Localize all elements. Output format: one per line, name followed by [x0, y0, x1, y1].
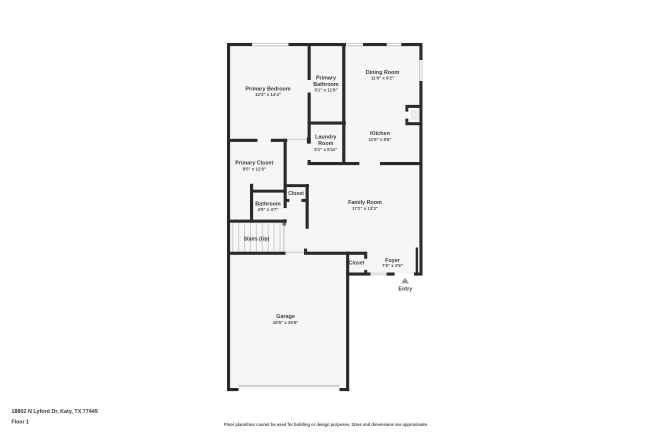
svg-text:Garage: Garage [276, 314, 295, 320]
svg-text:Laundry: Laundry [315, 135, 336, 141]
svg-text:5'1" x 11'9": 5'1" x 11'9" [314, 87, 337, 92]
svg-text:Floor plans/tour cannot be use: Floor plans/tour cannot be used for buil… [224, 422, 428, 427]
svg-text:12'2" x 14'4": 12'2" x 14'4" [255, 92, 281, 97]
svg-text:Closet: Closet [288, 191, 304, 197]
svg-text:11'9" x 9'2": 11'9" x 9'2" [371, 75, 394, 80]
svg-text:Floor 1: Floor 1 [12, 419, 29, 425]
svg-text:11'9" x 8'6": 11'9" x 8'6" [368, 137, 391, 142]
svg-text:Closet: Closet [349, 260, 365, 266]
svg-text:5'1" x 5'11": 5'1" x 5'11" [314, 147, 337, 152]
svg-text:17'2" x 13'3": 17'2" x 13'3" [352, 206, 378, 211]
svg-text:7'6" x 3'6": 7'6" x 3'6" [382, 263, 403, 268]
svg-text:18802 N Lyford Dr, Katy, TX 77: 18802 N Lyford Dr, Katy, TX 77449 [12, 409, 98, 415]
svg-text:Kitchen: Kitchen [370, 131, 390, 137]
svg-text:19'5" x 20'8": 19'5" x 20'8" [273, 320, 299, 325]
svg-text:8'5" x 12'6": 8'5" x 12'6" [243, 166, 266, 171]
svg-text:Primary: Primary [316, 76, 336, 82]
svg-text:4'9" x 4'7": 4'9" x 4'7" [258, 207, 279, 212]
svg-text:Stairs (Up): Stairs (Up) [244, 237, 270, 243]
svg-text:Entry: Entry [398, 287, 412, 293]
